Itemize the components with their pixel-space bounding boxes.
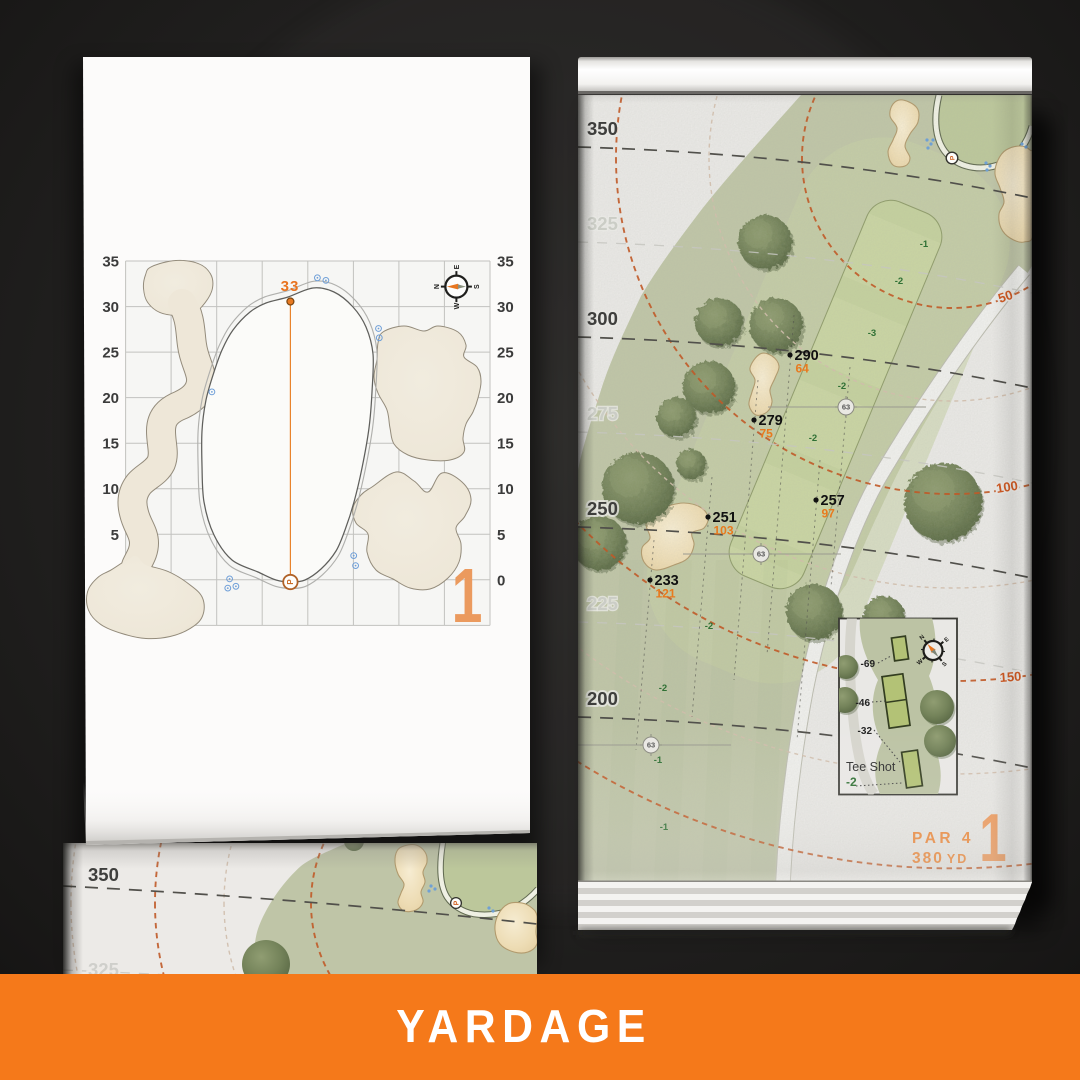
svg-text:30: 30 — [102, 299, 119, 316]
svg-text:63: 63 — [842, 403, 850, 412]
svg-text:-1: -1 — [920, 239, 929, 250]
svg-text:64: 64 — [796, 362, 810, 376]
svg-text:15: 15 — [102, 436, 119, 453]
svg-text:25: 25 — [497, 345, 514, 362]
svg-text:97: 97 — [822, 507, 836, 521]
svg-text:P: P — [453, 900, 460, 905]
svg-text:63: 63 — [757, 550, 765, 559]
svg-text:-69: -69 — [861, 659, 876, 670]
svg-text:75: 75 — [760, 427, 774, 441]
svg-text:-2: -2 — [809, 433, 817, 444]
svg-text:20: 20 — [102, 390, 119, 407]
svg-text:P: P — [949, 155, 956, 160]
svg-text:-2: -2 — [705, 621, 713, 632]
svg-text:1: 1 — [452, 553, 483, 639]
svg-text:15: 15 — [497, 436, 514, 453]
svg-text:103: 103 — [714, 524, 734, 538]
svg-text:35: 35 — [102, 254, 119, 271]
svg-text:5: 5 — [497, 527, 505, 544]
svg-text:-2: -2 — [659, 683, 667, 694]
svg-text:0: 0 — [497, 572, 505, 589]
svg-text:10: 10 — [102, 481, 119, 498]
svg-text:33: 33 — [281, 278, 300, 295]
svg-text:YARDAGE: YARDAGE — [396, 1002, 652, 1053]
svg-text:P: P — [286, 579, 295, 585]
svg-text:25: 25 — [102, 345, 119, 362]
svg-text:N: N — [434, 284, 441, 289]
svg-text:5: 5 — [111, 527, 119, 544]
svg-text:20: 20 — [497, 390, 514, 407]
svg-text:-3: -3 — [868, 328, 876, 339]
svg-text:-46: -46 — [856, 698, 871, 709]
svg-text:-2: -2 — [895, 276, 903, 287]
svg-text:S: S — [474, 284, 481, 289]
svg-text:-2: -2 — [838, 381, 846, 392]
svg-text:10: 10 — [497, 481, 514, 498]
svg-text:121: 121 — [656, 587, 676, 601]
svg-text:30: 30 — [497, 299, 514, 316]
svg-text:35: 35 — [497, 254, 514, 271]
svg-text:E: E — [454, 264, 461, 269]
svg-text:W: W — [454, 302, 461, 309]
